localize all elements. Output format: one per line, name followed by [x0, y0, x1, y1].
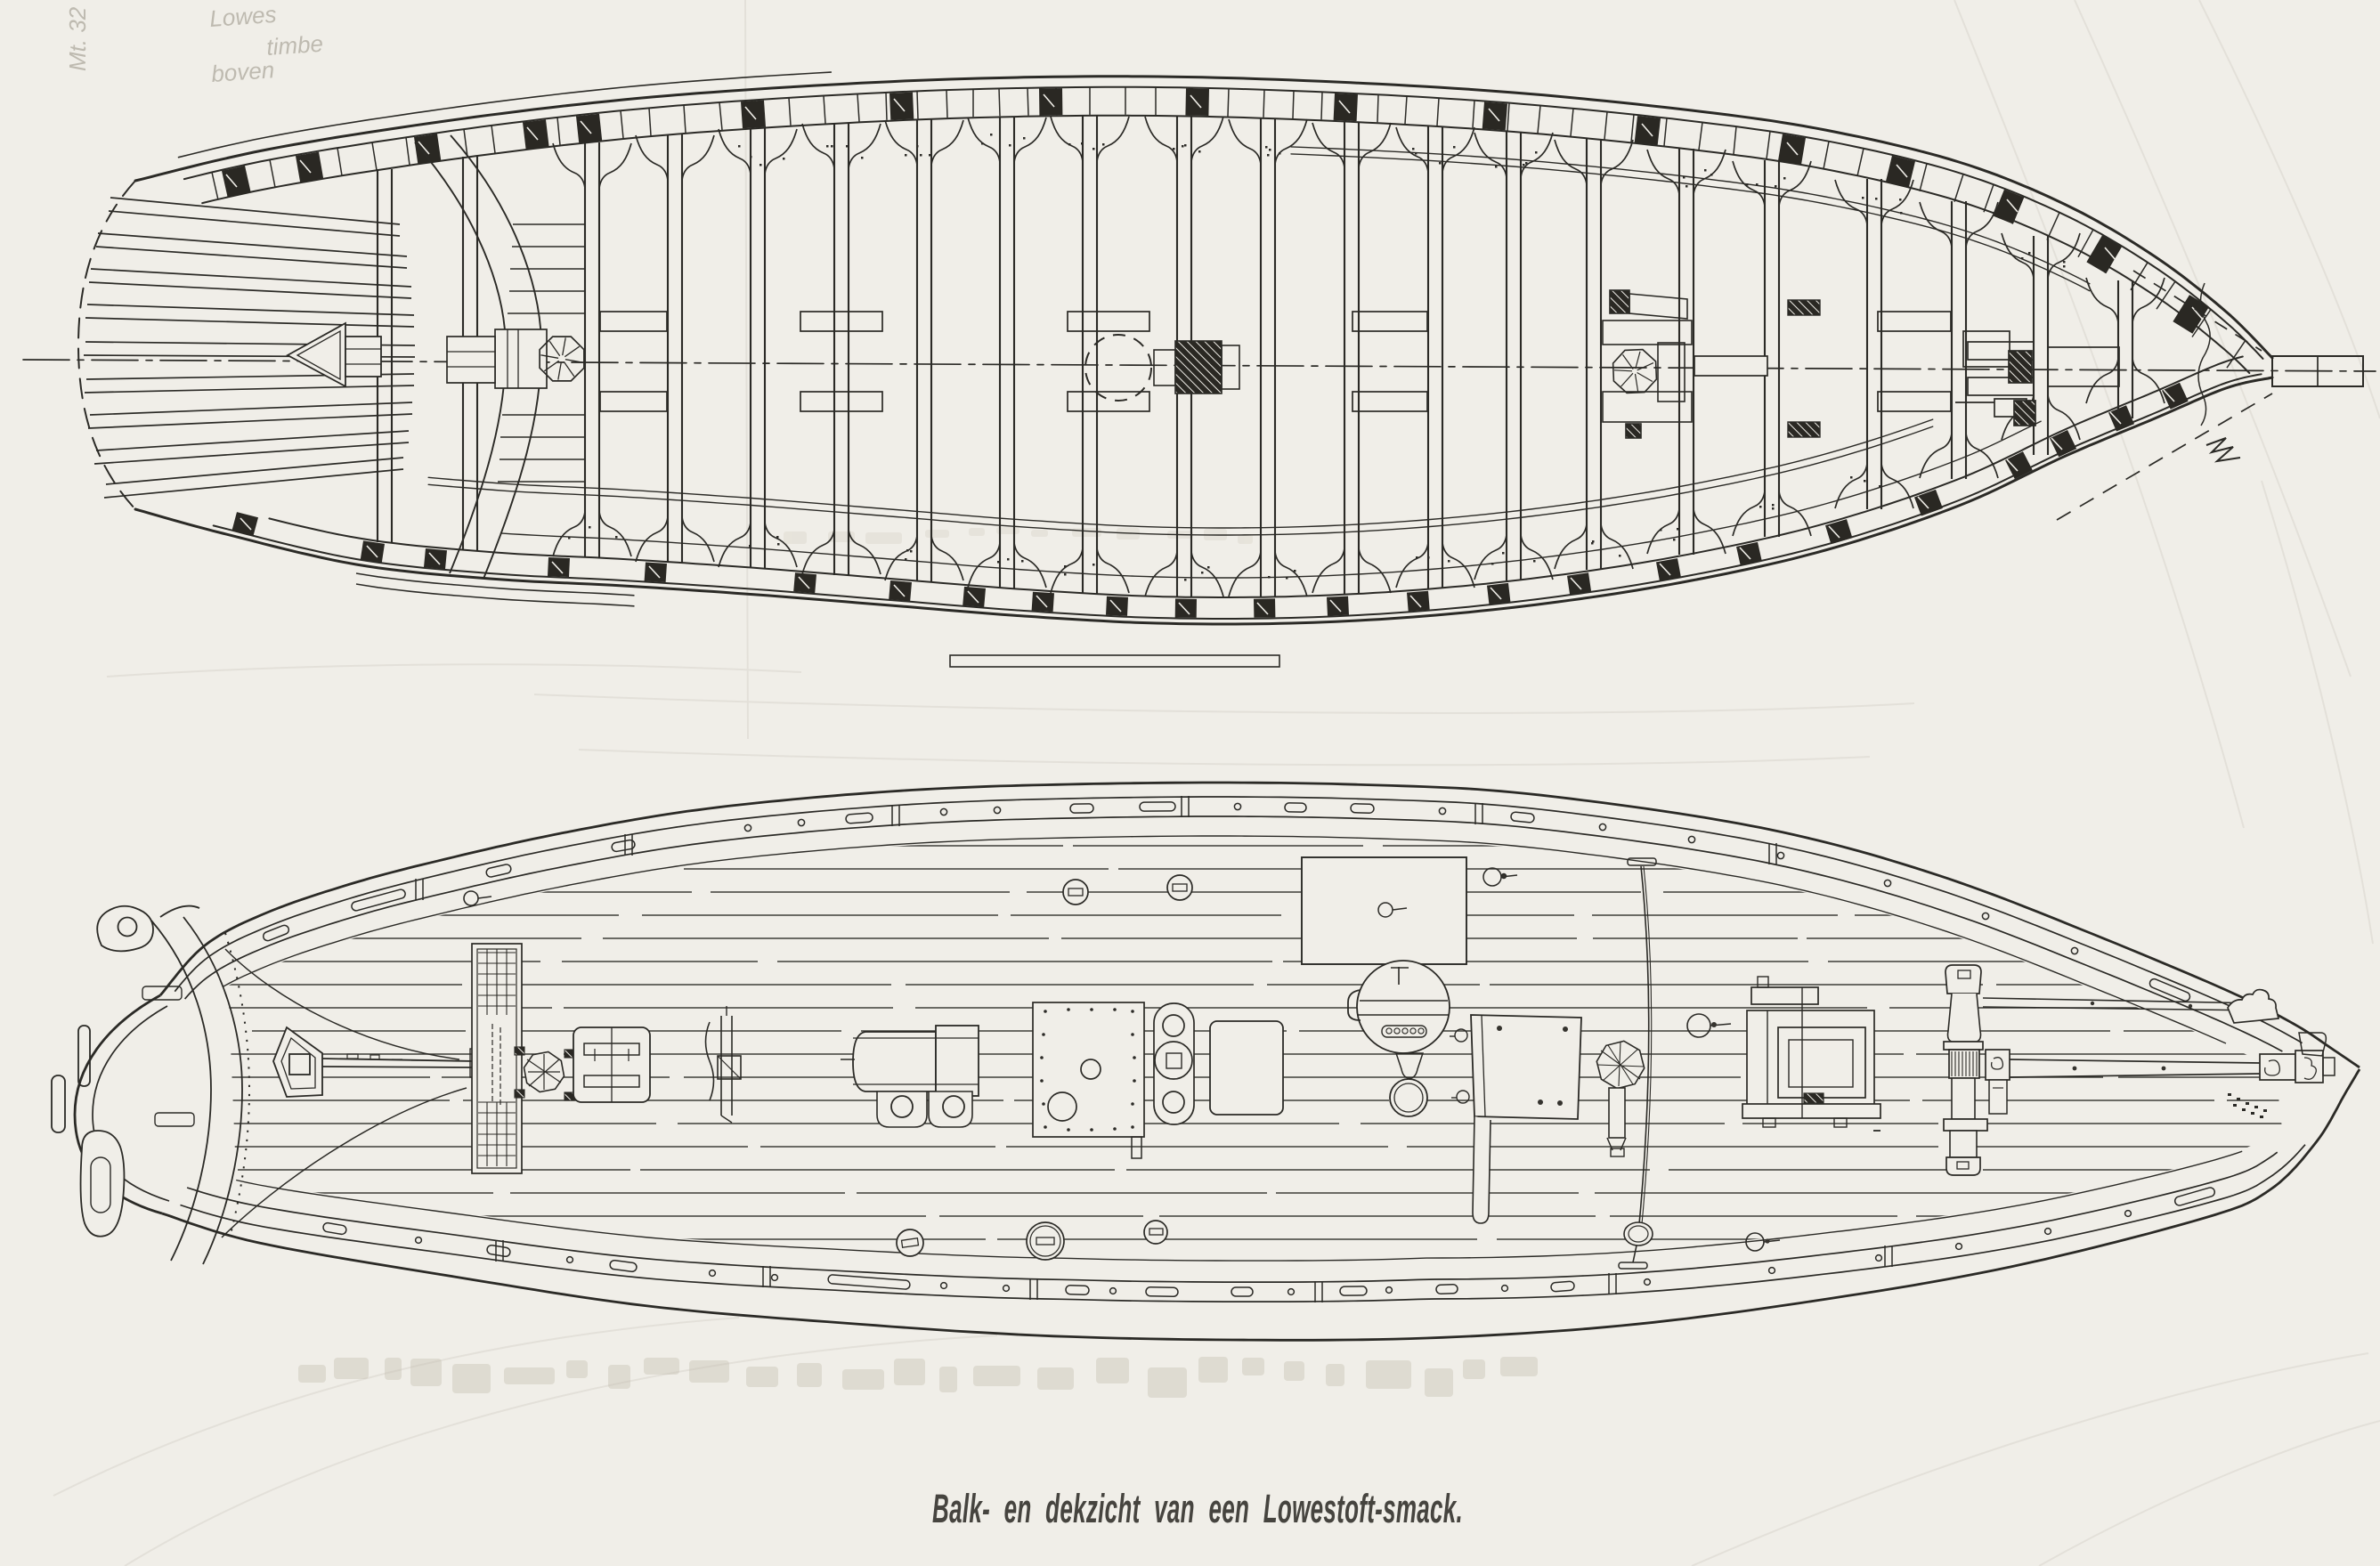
svg-text:timbe: timbe — [265, 30, 324, 61]
svg-text:boven: boven — [210, 56, 275, 87]
svg-text:Mt. 32: Mt. 32 — [64, 6, 91, 71]
svg-text:Lowes: Lowes — [208, 1, 277, 32]
svg-text:Balk- en dekzicht van een Lowe: Balk- en dekzicht van een Lowestoft-smac… — [932, 1487, 1463, 1531]
